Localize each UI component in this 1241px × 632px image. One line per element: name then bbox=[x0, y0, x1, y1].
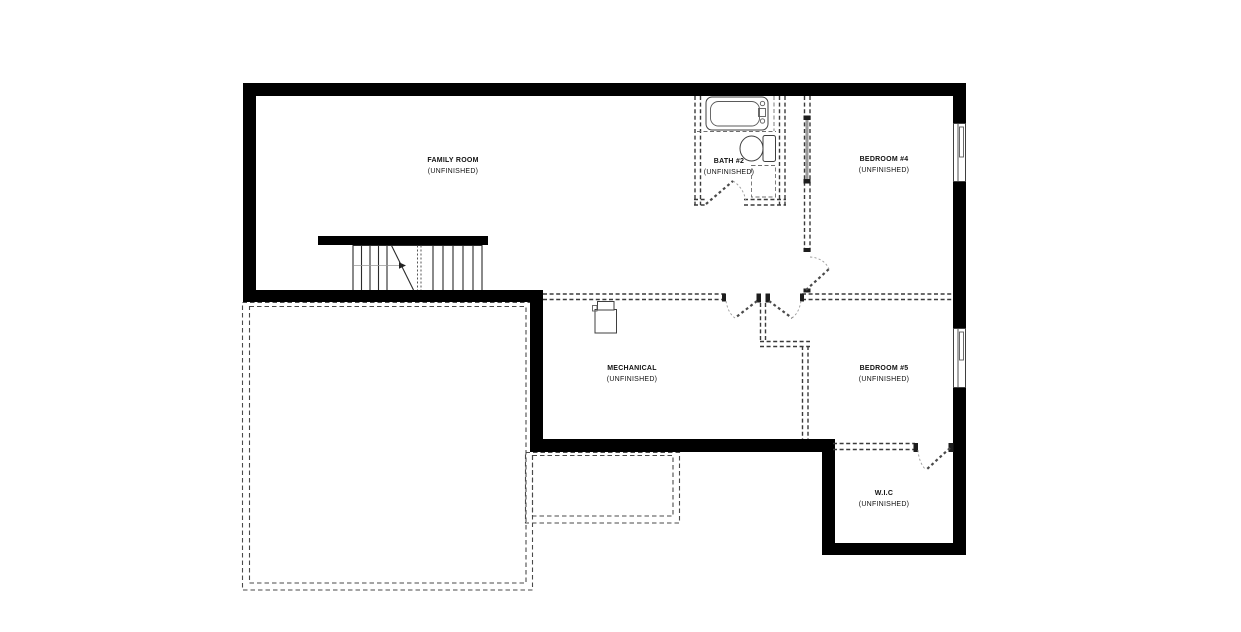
room-label-bath-2: BATH #2 (UNFINISHED) bbox=[704, 156, 754, 178]
stair-break-line bbox=[392, 246, 414, 291]
room-name: MECHANICAL bbox=[607, 363, 657, 374]
room-name: BEDROOM #5 bbox=[859, 363, 909, 374]
wall-stair-north bbox=[318, 236, 488, 245]
furnace bbox=[593, 302, 617, 334]
wall-family-south bbox=[243, 290, 543, 302]
floor-plan-page: FAMILY ROOM (UNFINISHED) BATH #2 (UNFINI… bbox=[0, 0, 1241, 632]
room-status: (UNFINISHED) bbox=[607, 374, 657, 385]
wall-right-upper bbox=[953, 83, 966, 123]
window-bedroom5 bbox=[954, 329, 966, 388]
door-bedroom4 bbox=[806, 257, 829, 290]
room-status: (UNFINISHED) bbox=[859, 499, 909, 510]
footing-outline-center bbox=[526, 453, 680, 524]
wall-wic-west bbox=[822, 439, 835, 555]
room-status: (UNFINISHED) bbox=[859, 165, 909, 176]
footing-outline-left bbox=[243, 303, 533, 591]
wall-right-middle bbox=[953, 182, 966, 328]
wall-left bbox=[243, 83, 256, 302]
room-name: BEDROOM #4 bbox=[859, 154, 909, 165]
wall-top bbox=[243, 83, 966, 96]
wall-right-lower bbox=[953, 388, 966, 555]
room-label-mechanical: MECHANICAL (UNFINISHED) bbox=[607, 363, 657, 385]
floor-plan-drawing bbox=[0, 0, 1241, 632]
room-name: W.I.C bbox=[859, 488, 909, 499]
room-name: BATH #2 bbox=[704, 156, 754, 167]
wall-wic-south bbox=[822, 543, 966, 555]
room-name: FAMILY ROOM bbox=[427, 155, 478, 166]
room-label-family-room: FAMILY ROOM (UNFINISHED) bbox=[427, 155, 478, 177]
door-bath bbox=[706, 181, 746, 204]
bathtub bbox=[706, 97, 768, 130]
door-hall-left bbox=[726, 301, 757, 318]
room-status: (UNFINISHED) bbox=[427, 166, 478, 177]
room-label-bedroom-5: BEDROOM #5 (UNFINISHED) bbox=[859, 363, 909, 385]
vanity bbox=[752, 166, 776, 198]
room-label-bedroom-4: BEDROOM #4 (UNFINISHED) bbox=[859, 154, 909, 176]
wall-mechanical-south bbox=[530, 439, 833, 452]
room-label-wic: W.I.C (UNFINISHED) bbox=[859, 488, 909, 510]
window-bedroom4 bbox=[954, 124, 966, 182]
door-wic bbox=[918, 448, 950, 470]
room-status: (UNFINISHED) bbox=[704, 167, 754, 178]
door-hall-right bbox=[769, 301, 801, 318]
staircase bbox=[353, 246, 483, 291]
room-status: (UNFINISHED) bbox=[859, 374, 909, 385]
wall-mechanical-west bbox=[530, 290, 543, 452]
